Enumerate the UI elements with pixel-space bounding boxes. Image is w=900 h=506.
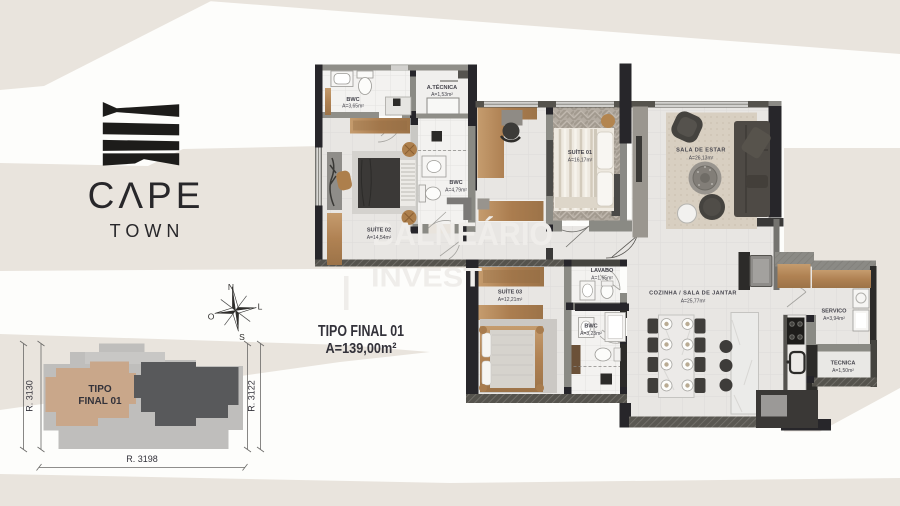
svg-text:A=1,50m²: A=1,50m² bbox=[832, 368, 854, 374]
svg-text:L: L bbox=[258, 302, 263, 312]
svg-text:COZINHA / SALA DE JANTAR: COZINHA / SALA DE JANTAR bbox=[649, 291, 737, 297]
svg-text:BALNEÁRIO: BALNEÁRIO bbox=[372, 216, 553, 252]
svg-text:SERVICO: SERVICO bbox=[821, 309, 847, 315]
svg-text:TECNICA: TECNICA bbox=[831, 361, 856, 367]
svg-text:TIPO FINAL 01: TIPO FINAL 01 bbox=[318, 323, 404, 340]
svg-text:A=25,77m²: A=25,77m² bbox=[681, 299, 706, 305]
svg-text:SUÍTE 02: SUÍTE 02 bbox=[367, 226, 391, 234]
svg-text:SUÍTE 03: SUÍTE 03 bbox=[498, 288, 522, 296]
svg-text:LAVABO: LAVABO bbox=[591, 268, 614, 274]
svg-text:A=1,53m²: A=1,53m² bbox=[431, 92, 453, 98]
svg-text:A=14,54m²: A=14,54m² bbox=[367, 235, 392, 241]
svg-text:R. 3130: R. 3130 bbox=[25, 380, 35, 412]
svg-text:BWC: BWC bbox=[584, 324, 597, 330]
svg-text:TIPO: TIPO bbox=[88, 384, 112, 395]
svg-text:A=3,65m²: A=3,65m² bbox=[342, 104, 364, 110]
svg-text:S: S bbox=[239, 332, 245, 342]
svg-text:N: N bbox=[228, 282, 234, 292]
svg-text:A=139,00m²: A=139,00m² bbox=[326, 340, 397, 357]
svg-text:A=3,23m²: A=3,23m² bbox=[580, 331, 602, 337]
svg-text:R. 3198: R. 3198 bbox=[126, 454, 158, 464]
svg-text:A.TÉCNICA: A.TÉCNICA bbox=[427, 83, 457, 91]
svg-text:SALA DE ESTAR: SALA DE ESTAR bbox=[676, 148, 726, 154]
svg-text:O: O bbox=[208, 312, 215, 322]
svg-text:A=12,21m²: A=12,21m² bbox=[498, 297, 523, 303]
svg-text:R. 3122: R. 3122 bbox=[247, 380, 257, 412]
svg-text:SUÍTE 01: SUÍTE 01 bbox=[568, 148, 592, 156]
svg-text:FINAL 01: FINAL 01 bbox=[78, 396, 122, 407]
svg-text:A=1,65m²: A=1,65m² bbox=[591, 276, 613, 282]
svg-text:A=3,94m²: A=3,94m² bbox=[823, 316, 845, 322]
svg-text:BWC: BWC bbox=[449, 180, 462, 186]
svg-text:A=26,13m²: A=26,13m² bbox=[689, 156, 714, 162]
svg-text:TOWN: TOWN bbox=[110, 221, 185, 241]
svg-text:A=4,79m²: A=4,79m² bbox=[445, 188, 467, 194]
svg-text:A=16,17m²: A=16,17m² bbox=[568, 158, 593, 164]
svg-text:INVEST: INVEST bbox=[371, 263, 483, 293]
svg-text:BWC: BWC bbox=[346, 97, 359, 103]
svg-text:CΛPE: CΛPE bbox=[88, 175, 205, 216]
